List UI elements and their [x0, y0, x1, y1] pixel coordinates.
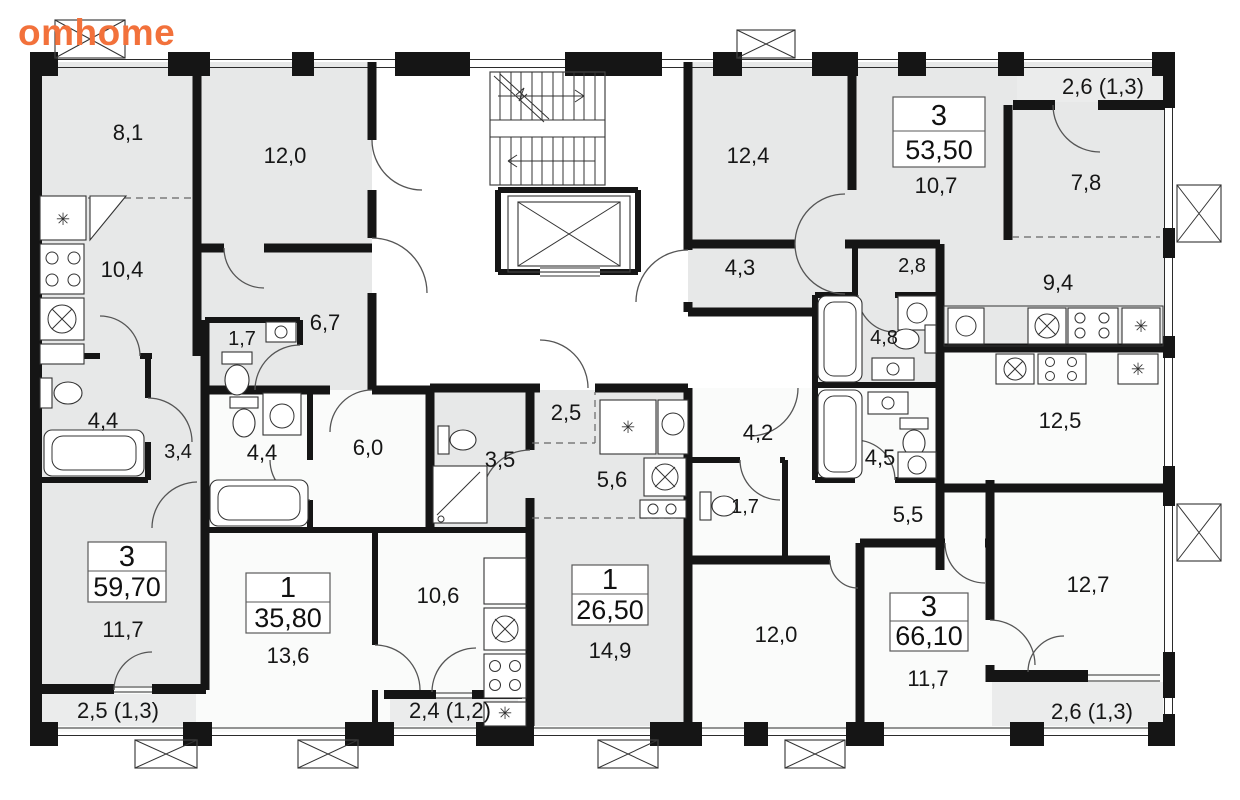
- shower-icon: [433, 466, 487, 523]
- apartment-rooms-count: 1: [280, 572, 296, 604]
- room-area-label: 4,8: [870, 327, 898, 349]
- sink-icon: [266, 322, 296, 342]
- sink-icon: [484, 608, 526, 650]
- sink-icon: [1028, 308, 1066, 344]
- svg-text:✳: ✳: [1131, 360, 1145, 380]
- corridor-extension-area: [688, 312, 815, 388]
- apartment-rooms-count: 3: [921, 591, 937, 623]
- sink-icon: [658, 400, 688, 454]
- washer-icon: [948, 308, 984, 344]
- washer-icon: [263, 393, 301, 435]
- bathtub-icon: [818, 296, 862, 382]
- room-area-label: 5,5: [893, 502, 924, 527]
- room-area-label: 12,0: [755, 622, 798, 647]
- sink-icon: [868, 392, 908, 414]
- apartment-total-area: 53,50: [905, 135, 973, 165]
- room-area-label: 6,7: [310, 310, 341, 335]
- basket-icon: [298, 740, 358, 768]
- cabinet-icon: [40, 344, 84, 364]
- basket-icon: [135, 740, 197, 768]
- sink-icon: [872, 358, 914, 380]
- apartment-total-area: 35,80: [254, 603, 322, 633]
- washer-icon: [898, 452, 936, 478]
- apartment-rooms-count: 3: [931, 100, 947, 132]
- room-area-label: 2,5 (1,3): [77, 698, 159, 723]
- sink-icon: [40, 298, 84, 340]
- apartment-badge-59-70: 3 59,70: [88, 541, 166, 602]
- stove-icon: [1038, 354, 1086, 384]
- basket-icon: [1177, 185, 1221, 242]
- room-area-label: 12,0: [264, 143, 307, 168]
- bathtub-icon: [210, 480, 308, 526]
- apartment-badge-35-80: 1 35,80: [246, 572, 330, 633]
- bathtub-icon: [818, 390, 862, 478]
- room-area-label: 1,7: [228, 328, 256, 350]
- apartment-total-area: 59,70: [93, 572, 161, 602]
- floor-plan-svg: ✳ ✳: [0, 0, 1240, 800]
- basket-icon: [598, 740, 658, 768]
- apartment-badge-53-50: 3 53,50: [893, 97, 985, 167]
- bathtub-icon: [44, 430, 144, 476]
- room-area-label: 3,4: [164, 441, 192, 463]
- cabinet-icon: [484, 558, 526, 604]
- room-area-label: 2,8: [898, 255, 926, 277]
- room-area-label: 13,6: [267, 643, 310, 668]
- room-area-label: 5,6: [597, 467, 628, 492]
- basket-icon: [785, 740, 845, 768]
- fridge-icon: ✳: [1118, 354, 1158, 384]
- room-area-label: 1,7: [731, 496, 759, 518]
- room-area-label: 8,1: [113, 120, 144, 145]
- apartment-badge-66-10: 3 66,10: [890, 591, 968, 651]
- toilet-icon: [222, 352, 252, 395]
- room-area-label: 4,5: [865, 445, 896, 470]
- fridge-icon: ✳: [1122, 308, 1160, 344]
- stove-icon: [40, 244, 84, 294]
- floor-plan-page: omhome: [0, 0, 1240, 800]
- room-area-label: 3,5: [485, 447, 516, 472]
- stove-icon: [484, 654, 526, 698]
- room-area-label: 2,4 (1,2): [409, 698, 491, 723]
- svg-text:✳: ✳: [498, 704, 512, 724]
- room-area-label: 4,4: [247, 440, 278, 465]
- stove-icon: [640, 500, 686, 518]
- room-area-label: 11,7: [102, 617, 143, 642]
- room-area-label: 14,9: [589, 638, 632, 663]
- room-area-label: 10,7: [915, 173, 958, 198]
- fridge-icon: ✳: [600, 400, 656, 454]
- svg-text:✳: ✳: [56, 210, 70, 230]
- brand-logo: omhome: [18, 12, 175, 54]
- room-area-label: 12,5: [1039, 408, 1082, 433]
- room-area-label: 2,5: [551, 400, 582, 425]
- apartment-rooms-count: 3: [119, 541, 135, 573]
- apartment-rooms-count: 1: [602, 564, 618, 596]
- room-area-label: 9,4: [1043, 270, 1074, 295]
- sink-icon: [644, 458, 686, 496]
- apartment-badge-26-50: 1 26,50: [572, 564, 648, 625]
- svg-text:✳: ✳: [621, 418, 635, 438]
- basket-icon: [1177, 504, 1221, 561]
- room-area-label: 2,6 (1,3): [1051, 699, 1133, 724]
- fridge-icon: ✳: [40, 196, 86, 240]
- room-area-label: 10,6: [417, 583, 460, 608]
- room-area-label: 11,7: [907, 666, 948, 691]
- room-area-label: 6,0: [353, 435, 384, 460]
- room-area-label: 2,6 (1,3): [1062, 74, 1144, 99]
- room-area-label: 4,3: [725, 255, 756, 280]
- apartment-total-area: 26,50: [576, 595, 644, 625]
- room-area-label: 12,4: [727, 143, 770, 168]
- stove-icon: [1068, 308, 1118, 344]
- room-area-label: 4,4: [88, 408, 119, 433]
- svg-text:✳: ✳: [1134, 317, 1148, 337]
- room-area-label: 12,7: [1067, 572, 1110, 597]
- room-area-label: 10,4: [101, 257, 144, 282]
- sink-icon: [996, 354, 1034, 384]
- room-area-label: 4,2: [743, 420, 774, 445]
- basket-icon: [737, 30, 795, 58]
- room-area-label: 7,8: [1071, 170, 1102, 195]
- apartment-total-area: 66,10: [895, 621, 963, 651]
